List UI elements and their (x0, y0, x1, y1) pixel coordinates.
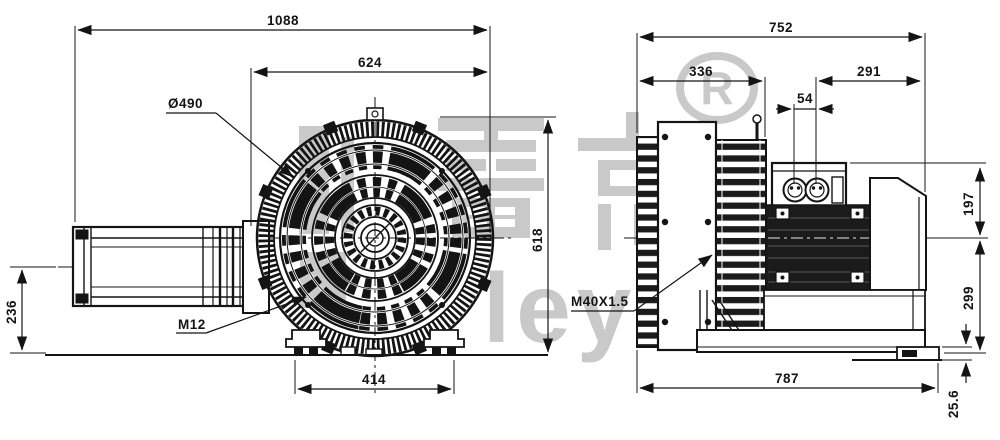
dim-414: 414 (362, 372, 386, 387)
dim-299: 299 (961, 286, 976, 310)
dim-54: 54 (797, 91, 813, 106)
top-fitting (753, 115, 761, 140)
dim-25-6: 25.6 (946, 390, 961, 418)
lifting-eye (367, 108, 383, 120)
dim-dia490: Ø490 (168, 96, 203, 111)
technical-drawing-canvas: 雷克 R leyk (0, 0, 1000, 440)
silencer-fin-stack (637, 137, 659, 347)
leader-dia490 (216, 113, 293, 177)
dim-1088: 1088 (267, 13, 299, 28)
cable-gland-right (806, 179, 829, 202)
dim-197: 197 (961, 192, 976, 216)
terminal-box (772, 163, 846, 207)
motor-body (766, 205, 872, 291)
label-m40x1-5: M40X1.5 (571, 294, 629, 309)
housing-fin-stack (716, 140, 766, 332)
dim-291: 291 (857, 64, 881, 79)
label-m12: M12 (178, 317, 206, 332)
dim-624: 624 (358, 55, 382, 70)
motor-fan-cowl (870, 178, 926, 290)
dim-336: 336 (689, 64, 713, 79)
silencer-tube (73, 227, 256, 306)
dim-618: 618 (530, 228, 545, 252)
dim-236: 236 (4, 300, 19, 324)
blower-drawing: 雷克 R leyk (0, 0, 1000, 440)
dim-787: 787 (775, 371, 799, 386)
dim-752: 752 (769, 20, 793, 35)
fan-guard (257, 120, 493, 356)
cable-gland-left (784, 179, 807, 202)
